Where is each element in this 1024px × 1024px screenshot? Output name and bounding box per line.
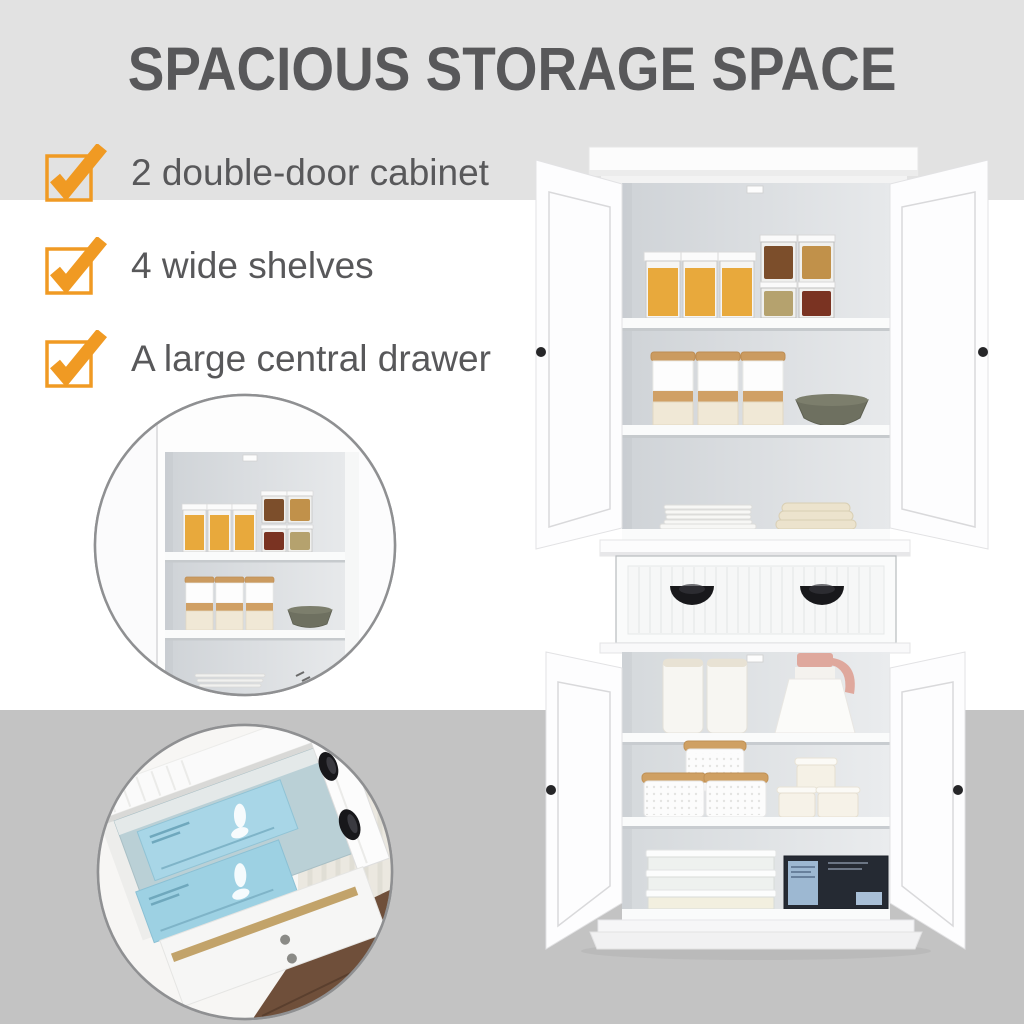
feature-item: A large central drawer [45, 334, 491, 384]
feature-item: 4 wide shelves [45, 241, 374, 291]
upper-cabinet-interior [622, 183, 890, 540]
storage-boxes [646, 850, 888, 909]
checkbox-check-icon [45, 330, 107, 388]
dark-box [784, 856, 888, 909]
door-knob-icon [953, 785, 963, 795]
feature-label: A large central drawer [131, 338, 491, 380]
inset-bottom-circle [61, 696, 434, 1024]
open-drawer [61, 696, 434, 1023]
door-knob-icon [546, 785, 556, 795]
checkbox-check-icon [45, 144, 107, 202]
main-cabinet-photo [536, 147, 988, 960]
central-drawer [600, 540, 910, 653]
checkbox-check-icon [45, 237, 107, 295]
page-title: SPACIOUS STORAGE SPACE [0, 34, 1024, 104]
feature-label: 4 wide shelves [131, 245, 374, 287]
door-knob-icon [978, 347, 988, 357]
product-feature-image: SPACIOUS STORAGE SPACE 2 double-door cab… [0, 0, 1024, 1024]
feature-label: 2 double-door cabinet [131, 152, 489, 194]
cabinet-base [590, 920, 922, 949]
door-knob-icon [536, 347, 546, 357]
feature-item: 2 double-door cabinet [45, 148, 489, 198]
inset-top-circle [95, 395, 399, 700]
lower-cabinet-interior [622, 652, 890, 920]
